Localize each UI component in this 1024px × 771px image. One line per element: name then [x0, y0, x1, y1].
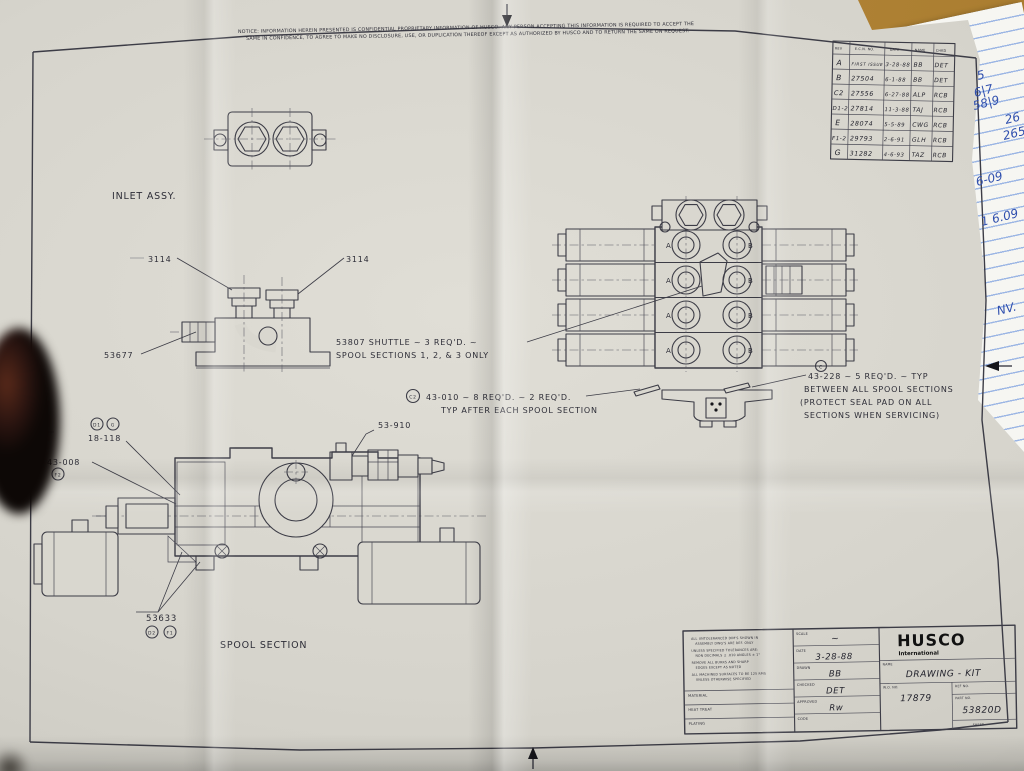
rev-cell: 2-6-91 [884, 137, 905, 143]
rev-cell: C2 [834, 89, 844, 97]
rev-cell: RCB [933, 137, 947, 144]
handwriting-fragment: 265 [1001, 124, 1024, 143]
registration-arrow-top [502, 4, 512, 27]
blueprint-drawing: NOTICE: INFORMATION HEREIN PRESENTED IS … [0, 0, 1024, 771]
rev-header-ecn: E.C.N. NO. [855, 47, 875, 51]
tb-ref-label: REF NO. [955, 684, 969, 688]
revision-table: REV E.C.N. NO. DATE NAME CHKD A FIRST IS… [831, 41, 955, 162]
rev-header-date: DATE [890, 48, 900, 52]
port-label-a: A [666, 312, 672, 320]
handwriting-fragment: 6-09 [974, 169, 1004, 189]
label-18118: 18-118 [88, 434, 121, 443]
rev-cell: ALP [912, 92, 926, 99]
port-label-b: B [748, 277, 754, 285]
label-3114-left: 3114 [148, 255, 172, 264]
tb-name-value: DRAWING - KIT [906, 669, 982, 680]
rev-cell: DET [934, 77, 949, 84]
notepad-handwriting: 5 6|7 58|9 26 265 6-09 1 6.09 NV. [971, 67, 1024, 317]
husco-logo: HUSCO [897, 630, 966, 650]
tb-wo-value: 17879 [900, 694, 932, 705]
tb-sheet-label: SHEET [973, 723, 984, 727]
rev-cell: FIRST ISSUE [851, 61, 883, 67]
flag-d2: D2 [148, 631, 156, 637]
rev-cell: 3-28-88 [885, 62, 910, 69]
rev-header-rev: REV [835, 47, 843, 51]
callout-seals-1: 43-228 ~ 5 REQ'D. ~ TYP [808, 372, 928, 381]
callout-orings-1: 43-010 ~ 8 REQ'D. ~ 2 REQ'D. [426, 393, 571, 402]
tb-material-label: MATERIAL [688, 694, 707, 698]
tb-scale-label: SCALE [796, 632, 808, 636]
tb-name-label: NAME [883, 662, 893, 666]
port-label-b: B [748, 312, 754, 320]
rev-cell: TAJ [912, 107, 923, 114]
port-label-b: B [748, 347, 754, 355]
rev-cell: 27504 [851, 75, 874, 82]
tb-drawn-value: BB [829, 669, 842, 679]
valve-bank-assembly: A B A B A B A B [552, 196, 858, 372]
tb-wo-label: W.O. NO. [883, 685, 899, 689]
tb-approved-label: APPROVED [797, 700, 817, 704]
rev-cell: G [835, 148, 842, 157]
rev-cell: 27814 [851, 105, 874, 112]
rev-cell: E [835, 118, 841, 127]
registration-arrow-right [985, 361, 1012, 371]
confidentiality-notice: NOTICE: INFORMATION HEREIN PRESENTED IS … [238, 21, 694, 42]
label-53910: 53-910 [378, 421, 411, 430]
rev-cell: 4-6-93 [884, 152, 905, 158]
rev-cell: 5-5-89 [884, 122, 905, 128]
handwriting-fragment: 1 6.09 [979, 206, 1019, 229]
tie-rod-pin [724, 383, 750, 393]
flag-c: C [819, 365, 823, 371]
title-block: ALL UNTOLERANCED DIM'S SHOWN IN ASSEMBLY… [683, 625, 1017, 734]
tie-rod-pin [634, 385, 660, 396]
rev-cell: DET [934, 62, 949, 69]
rev-cell: 6-27-88 [885, 92, 910, 99]
tb-note: UNLESS OTHERWISE SPECIFIED [696, 677, 752, 682]
inlet-assembly-top-view [204, 108, 336, 172]
label-53633: 53633 [146, 614, 177, 624]
rev-cell: 6-1-88 [885, 77, 906, 83]
rev-cell: 11-3-88 [885, 107, 910, 114]
tb-checked-label: CHECKED [797, 683, 815, 687]
end-cover-piece [634, 383, 772, 427]
rev-cell: 27556 [851, 90, 874, 97]
port-label-a: A [666, 347, 672, 355]
label-inlet-assy: INLET ASSY. [112, 191, 176, 202]
husco-logo-sub: International [898, 651, 939, 658]
tb-code-label: CODE [798, 717, 809, 721]
tb-drawn-label: DRAWN [797, 666, 811, 670]
tb-note: EDGES EXCEPT AS NOTED [696, 665, 742, 670]
tb-scale-value: ~ [831, 634, 839, 644]
callout-shuttle-1: 53807 SHUTTLE ~ 3 REQ'D. ~ [336, 338, 477, 347]
tb-checked-value: DET [826, 686, 845, 696]
rev-cell: TAZ [912, 152, 926, 159]
tb-note: ALL MACHINED SURFACES TO BE 125 RMS [692, 672, 766, 677]
port-label-b: B [748, 242, 754, 250]
flag-d1: D1 [93, 423, 101, 429]
rev-cell: 29793 [850, 135, 873, 142]
registration-arrow-bottom [528, 747, 538, 769]
tb-date-label: DATE [796, 649, 806, 653]
label-53677: 53677 [104, 351, 133, 360]
flag-g: G [111, 423, 115, 429]
photo-of-blueprint: NOTICE: INFORMATION HEREIN PRESENTED IS … [0, 0, 1024, 771]
port-label-a: A [666, 242, 672, 250]
label-3114-right: 3114 [346, 255, 370, 264]
relief-valve-53910 [330, 443, 444, 480]
stack-inlet-top [652, 200, 767, 232]
rev-cell: D1-2 [833, 106, 849, 112]
rev-header-chkd: CHKD [936, 49, 947, 53]
flag-f1: F1 [166, 631, 173, 637]
flag-c2: C2 [409, 395, 417, 401]
rev-cell: BB [913, 62, 923, 69]
tb-note: NON DECIMALS ± .010 ANGLES ± 1° [695, 653, 760, 658]
tb-part-label: PART NO. [955, 696, 971, 700]
rev-cell: 31282 [850, 150, 873, 157]
rev-header-name: NAME [915, 48, 926, 52]
tb-note: ASSEMBLY DWG'S ARE REF. ONLY [695, 641, 753, 646]
callout-shuttle-2: SPOOL SECTIONS 1, 2, & 3 ONLY [336, 351, 489, 360]
inlet-assembly-section-view [170, 275, 330, 372]
tb-date-value: 3-28-88 [815, 652, 853, 663]
annotations: INLET ASSY. SPOOL SECTION 3114 3114 5367… [26, 191, 954, 651]
callout-orings-2: TYP AFTER EACH SPOOL SECTION [440, 406, 598, 415]
rev-cell: GLH [912, 137, 926, 144]
port-label-a: A [666, 277, 672, 285]
flag-f2: F2 [54, 473, 61, 479]
tb-plating-label: PLATING [689, 722, 706, 726]
callout-seals-4: SECTIONS WHEN SERVICING) [804, 411, 940, 420]
rev-cell: 28074 [850, 120, 873, 127]
rev-cell: BB [913, 77, 923, 84]
tb-heat-label: HEAT TREAT [688, 707, 712, 711]
rev-cell: RCB [933, 122, 947, 129]
rev-cell: RCB [934, 92, 948, 99]
label-spool-section: SPOOL SECTION [220, 640, 307, 651]
rev-cell: B [836, 73, 842, 82]
callout-seals-2: BETWEEN ALL SPOOL SECTIONS [804, 385, 954, 394]
tb-approved-value: Rw [829, 703, 843, 713]
rev-cell: F1-2 [832, 136, 847, 142]
rev-cell: RCB [933, 152, 947, 159]
callout-seals-3: (PROTECT SEAL PAD ON ALL [800, 398, 932, 407]
handwriting-fragment: NV. [995, 300, 1017, 318]
rev-cell: CWG [912, 122, 929, 129]
rev-cell: RCB [933, 107, 947, 114]
tb-part-value: 53820D [962, 705, 1001, 716]
rev-cell: A [835, 58, 842, 67]
